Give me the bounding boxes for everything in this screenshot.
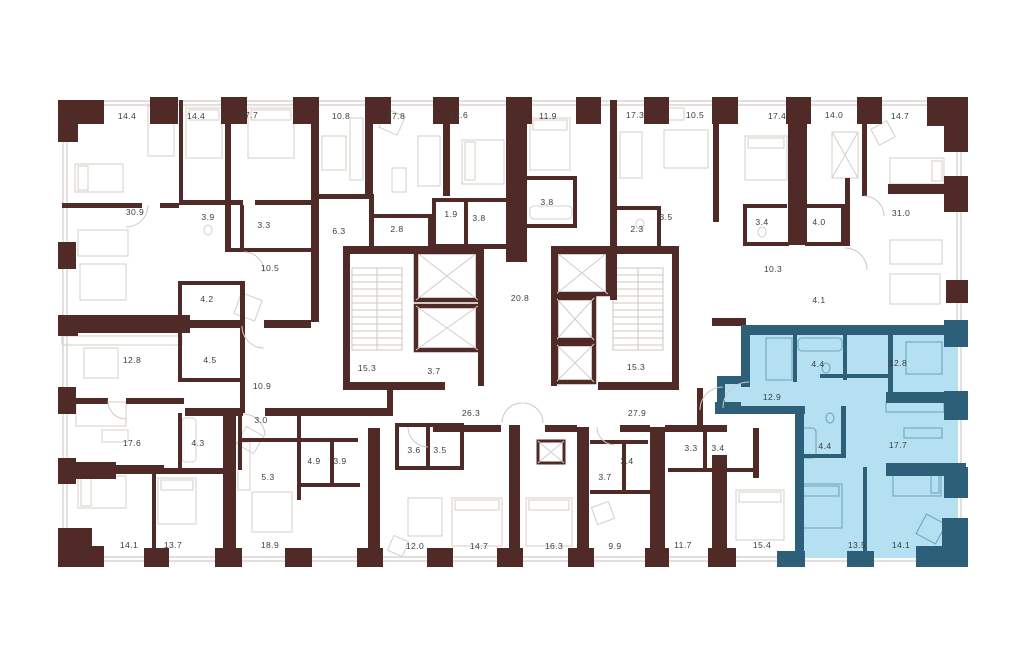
room-area-label: 5.3	[261, 472, 274, 482]
room-area-label: 18.9	[261, 540, 279, 550]
room-area-label: 4.1	[812, 295, 825, 305]
room-area-label: 3.4	[711, 443, 724, 453]
room-area-label-highlighted: 12.9	[763, 392, 781, 402]
room-area-label-highlighted: 12.8	[889, 358, 907, 368]
room-area-label: 10.9	[253, 381, 271, 391]
room-area-label: 10.8	[332, 111, 350, 121]
room-area-label: 10.5	[686, 110, 704, 120]
stairwell-right	[613, 268, 663, 350]
room-area-label: 4.2	[200, 294, 213, 304]
room-area-label: 9.9	[608, 541, 621, 551]
room-area-label: 27.9	[628, 408, 646, 418]
room-area-label: 3.9	[333, 456, 346, 466]
floor-plan-svg: 14.414.417.710.817.812.611.917.310.517.4…	[0, 0, 1024, 661]
room-area-label: 3.7	[598, 472, 611, 482]
room-area-label: 15.3	[627, 362, 645, 372]
room-area-label: 30.9	[126, 207, 144, 217]
room-area-label: 2.3	[630, 224, 643, 234]
room-area-label: 17.7	[240, 110, 258, 120]
room-area-label: 11.9	[539, 111, 557, 121]
room-area-label: 4.0	[812, 217, 825, 227]
room-area-label: 17.4	[768, 111, 786, 121]
room-area-label: 17.8	[387, 111, 405, 121]
room-area-label: 12.6	[450, 110, 468, 120]
room-area-label: 3.8	[472, 213, 485, 223]
room-area-label: 20.8	[511, 293, 529, 303]
room-area-label-highlighted: 4.4	[811, 359, 824, 369]
room-area-label-highlighted: 4.4	[818, 441, 831, 451]
room-area-label: 31.0	[892, 208, 910, 218]
room-area-label: 11.7	[674, 540, 692, 550]
room-area-label-highlighted: 14.1	[892, 540, 910, 550]
room-area-label: 17.6	[123, 438, 141, 448]
stairwell-left	[352, 268, 402, 350]
room-area-label: 14.4	[187, 111, 205, 121]
room-area-label: 14.7	[891, 111, 909, 121]
room-area-label: 14.4	[118, 111, 136, 121]
room-area-label: 15.4	[753, 540, 771, 550]
room-area-label: 3.5	[433, 445, 446, 455]
room-area-label: 10.3	[764, 264, 782, 274]
room-area-label: 3.0	[254, 415, 267, 425]
room-area-label: 3.4	[755, 217, 768, 227]
room-area-label: 26.3	[462, 408, 480, 418]
room-area-label: 4.5	[203, 355, 216, 365]
room-area-label-highlighted: 17.7	[889, 440, 907, 450]
room-area-label: 12.8	[123, 355, 141, 365]
room-area-label: 13.7	[164, 540, 182, 550]
room-area-label: 3.3	[684, 443, 697, 453]
room-area-label: 3.3	[257, 220, 270, 230]
room-area-label-highlighted: 13.5	[848, 540, 866, 550]
room-area-label: 14.1	[120, 540, 138, 550]
room-area-label: 4.3	[191, 438, 204, 448]
room-area-label: 14.7	[470, 541, 488, 551]
room-area-label: 10.5	[261, 263, 279, 273]
room-area-label: 3.6	[407, 445, 420, 455]
room-area-label: 14.0	[825, 110, 843, 120]
room-area-label: 2.8	[390, 224, 403, 234]
room-area-label: 1.9	[444, 209, 457, 219]
room-area-label: 3.7	[427, 366, 440, 376]
room-area-label: 15.3	[358, 363, 376, 373]
room-area-label: 17.3	[626, 110, 644, 120]
room-area-label: 12.0	[406, 541, 424, 551]
room-area-label: 3.4	[620, 456, 633, 466]
room-area-label: 6.3	[332, 226, 345, 236]
room-area-label: 4.9	[307, 456, 320, 466]
room-area-label: 16.3	[545, 541, 563, 551]
room-area-label: 3.8	[540, 197, 553, 207]
floor-plan-page: 14.414.417.710.817.812.611.917.310.517.4…	[0, 0, 1024, 661]
room-area-label: 3.9	[201, 212, 214, 222]
room-area-label: 3.5	[659, 212, 672, 222]
